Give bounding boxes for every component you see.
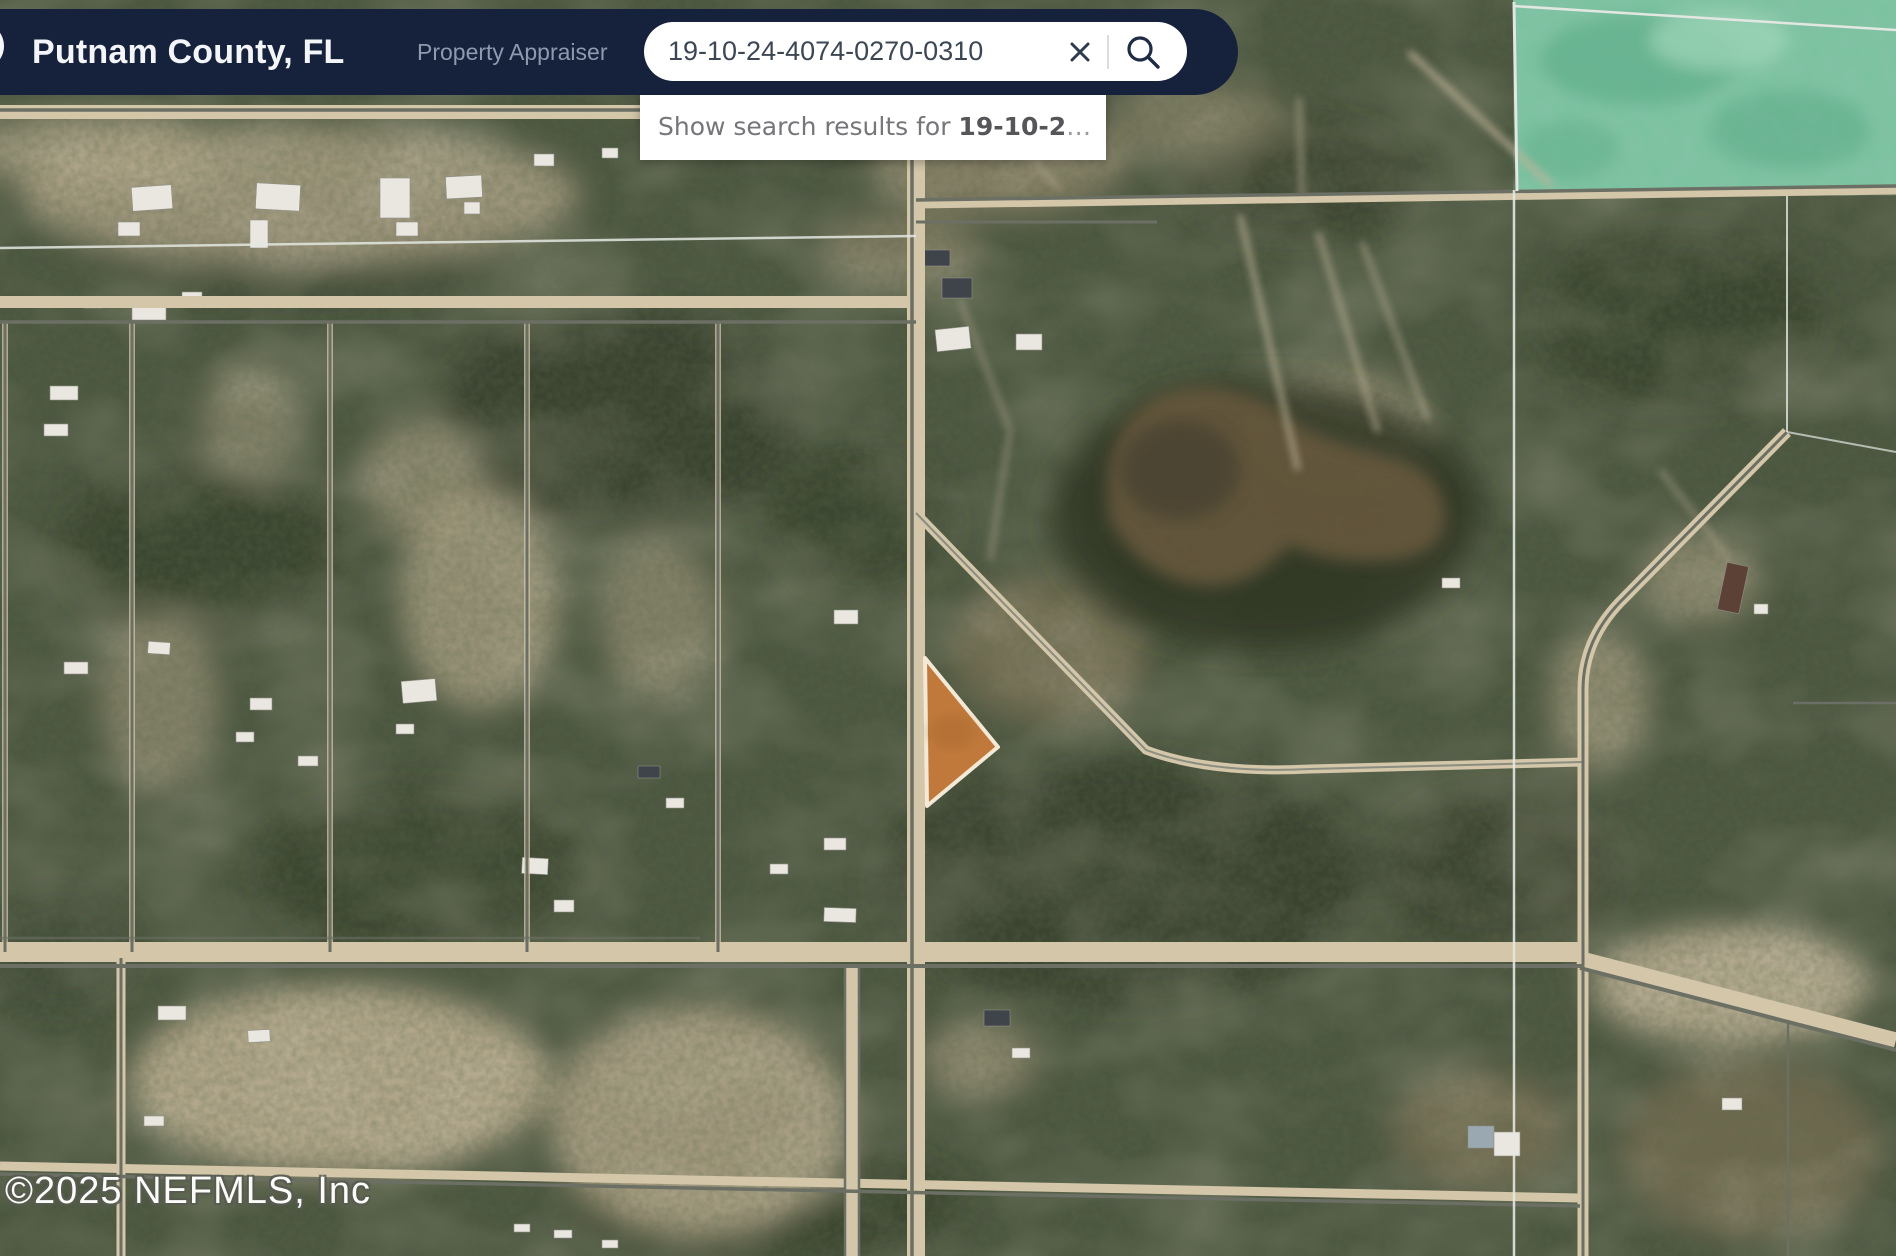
search-button[interactable] bbox=[1121, 30, 1165, 74]
search-input[interactable] bbox=[668, 22, 1048, 81]
header-bar: Putnam County, FL Property Appraiser bbox=[0, 9, 1238, 95]
x-close-icon bbox=[1058, 30, 1102, 74]
suggestion-ellipsis: … bbox=[1066, 112, 1091, 141]
marsh-area bbox=[1050, 380, 1480, 650]
search-suggestion-item[interactable]: Show search results for 19-10-2… bbox=[640, 92, 1106, 160]
parcel-search bbox=[644, 22, 1187, 81]
search-icon bbox=[1121, 30, 1165, 74]
clear-search-button[interactable] bbox=[1058, 30, 1102, 74]
county-logo bbox=[0, 22, 4, 70]
suggestion-query-text: 19-10-2 bbox=[958, 112, 1066, 141]
suggestion-prefix-text: Show search results for bbox=[658, 112, 958, 141]
property-appraiser-app: Putnam County, FL Property Appraiser Sho… bbox=[0, 0, 1896, 1256]
app-subtitle: Property Appraiser bbox=[417, 39, 607, 66]
search-divider bbox=[1107, 35, 1109, 69]
satellite-map[interactable] bbox=[0, 0, 1896, 1256]
page-title: Putnam County, FL bbox=[32, 33, 345, 72]
overlay-region-teal bbox=[1513, 0, 1896, 196]
